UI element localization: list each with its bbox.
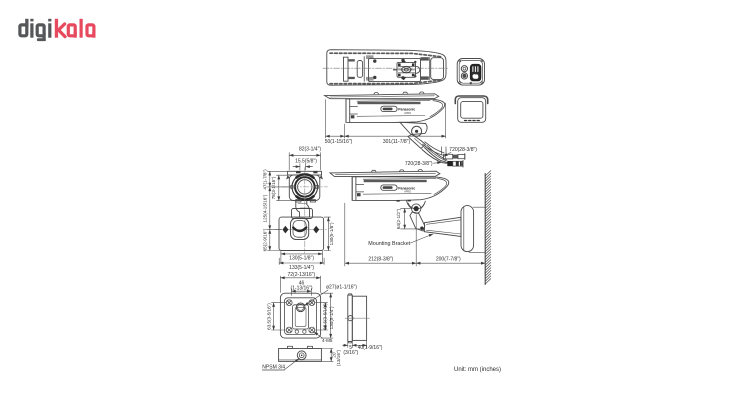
svg-text:63.5(3-5/16"): 63.5(3-5/16") xyxy=(323,303,328,330)
svg-text:720(28-3/8"): 720(28-3/8") xyxy=(405,161,433,167)
svg-text:130(5-1/8"): 130(5-1/8") xyxy=(329,222,334,245)
svg-text:133(5-1/4"): 133(5-1/4") xyxy=(289,265,314,271)
svg-text:212(8-3/8"): 212(8-3/8") xyxy=(368,257,393,263)
svg-text:(3/16"): (3/16") xyxy=(343,350,358,356)
svg-text:Panasonic: Panasonic xyxy=(398,186,415,190)
svg-text:(13/16"): (13/16") xyxy=(336,349,341,366)
svg-text:200(7-7/8"): 200(7-7/8") xyxy=(436,257,461,263)
svg-text:Unit: mm (inches): Unit: mm (inches) xyxy=(454,367,501,373)
svg-text:(1-13/16"): (1-13/16") xyxy=(290,286,312,292)
svg-text:72(2-13/16"): 72(2-13/16") xyxy=(287,272,315,278)
svg-text:47(1-7/8"): 47(1-7/8") xyxy=(263,169,268,190)
svg-text:720(28-3/8"): 720(28-3/8") xyxy=(449,147,477,153)
svg-text:i-PRO: i-PRO xyxy=(404,190,411,194)
svg-text:Panasonic: Panasonic xyxy=(398,108,415,112)
svg-text:ø27(ø1-1/16"): ø27(ø1-1/16") xyxy=(326,285,357,291)
svg-text:63.5(3-5/16"): 63.5(3-5/16") xyxy=(267,303,272,330)
svg-text:4-M5: 4-M5 xyxy=(322,338,333,343)
svg-text:64(2-1/2"): 64(2-1/2") xyxy=(396,208,401,229)
svg-text:125(4-15/16"): 125(4-15/16") xyxy=(263,194,268,222)
svg-text:82(3-1/4"): 82(3-1/4") xyxy=(299,147,321,153)
svg-text:130(5-1/8"): 130(5-1/8") xyxy=(289,255,314,261)
svg-text:Mounting Bracket: Mounting Bracket xyxy=(368,241,410,247)
svg-text:301(11-7/8"): 301(11-7/8") xyxy=(383,139,411,145)
svg-text:130(5-1/4"): 130(5-1/4") xyxy=(329,306,334,329)
svg-text:50(1-15/16"): 50(1-15/16") xyxy=(325,139,353,145)
svg-text:65(2-9/16"): 65(2-9/16") xyxy=(263,228,268,251)
svg-text:15.5(5/8"): 15.5(5/8") xyxy=(295,159,317,165)
svg-text:i-PRO: i-PRO xyxy=(404,111,411,115)
svg-text:78(3-1/16"): 78(3-1/16") xyxy=(271,176,276,199)
svg-text:40(1-9/16"): 40(1-9/16") xyxy=(358,345,383,351)
